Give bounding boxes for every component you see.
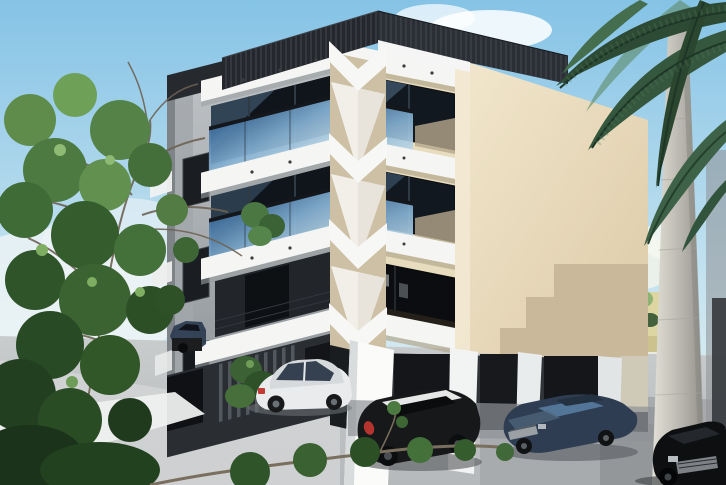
foliage-cluster [4,94,56,146]
downlight [403,243,406,246]
wheel-hub [665,474,672,481]
leaf-highlight [54,144,66,156]
right-edge-dark [712,298,726,428]
foliage-cluster [114,224,166,276]
foliage-cluster [396,416,408,428]
leaf-highlight [66,376,78,388]
corner-chevron-stack [329,41,387,356]
downlight [430,71,433,74]
taillight [258,388,265,394]
foliage-cluster [350,437,380,467]
garage-car [170,321,206,353]
foliage-cluster [128,143,172,187]
downlight [288,246,291,249]
wheel-hub [384,452,392,460]
foliage-cluster [155,285,185,315]
downlight [288,160,291,163]
foliage-cluster [5,250,65,310]
foliage-cluster [108,398,152,442]
through-view-wall [620,356,648,412]
wheel-hub [273,401,280,408]
wheel-hub [603,435,609,441]
foliage-cluster [80,335,140,395]
leaf-highlight [105,155,115,165]
headlight [668,456,678,462]
leaf-highlight [87,277,97,287]
foliage-cluster [454,439,476,461]
car-pillar [304,362,305,381]
downlight [403,157,406,160]
headlight [538,424,546,429]
leaf-highlight [36,244,48,256]
side-wall-corner-highlight [455,58,470,352]
downlight [241,78,244,81]
downlight [250,170,253,173]
foliage-cluster [53,73,97,117]
downlight [402,64,405,67]
downlight [314,58,317,61]
foliage-cluster [407,437,433,463]
downlight [250,256,253,259]
foliage-cluster [293,443,327,477]
foliage-cluster [496,443,514,461]
wheel [178,343,188,353]
downlight [278,68,281,71]
door-glass-glint [399,283,408,299]
foliage-cluster [173,237,199,263]
bush [225,384,255,408]
wheel-hub [331,399,337,405]
balcony-plant [248,226,272,246]
foliage-cluster [51,201,119,269]
wheel-hub [521,443,527,449]
blue-sedan [502,394,638,461]
render-canvas [0,0,726,485]
foliage-cluster [387,401,401,415]
architectural-render-image [0,0,726,485]
bush-highlight [246,360,254,368]
leaf-highlight [135,287,145,297]
foliage-cluster [156,194,188,226]
